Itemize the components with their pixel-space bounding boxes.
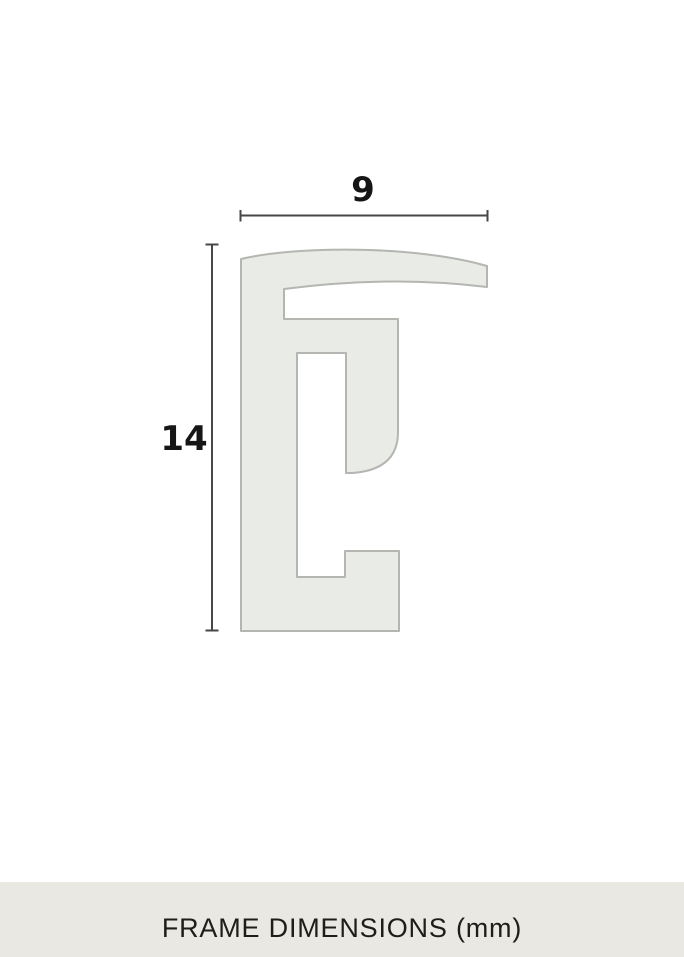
profile-diagram-canvas [0,0,684,882]
footer-caption: FRAME DIMENSIONS (mm) [162,913,522,944]
frame-profile-shape [241,250,487,631]
width-dimension-line [240,210,488,222]
width-dimension-label: 9 [331,173,395,207]
frame-dimension-diagram: 9 14 FRAME DIMENSIONS (mm) [0,0,684,957]
height-dimension-label: 14 [152,422,216,456]
footer-bar: FRAME DIMENSIONS (mm) [0,882,684,957]
